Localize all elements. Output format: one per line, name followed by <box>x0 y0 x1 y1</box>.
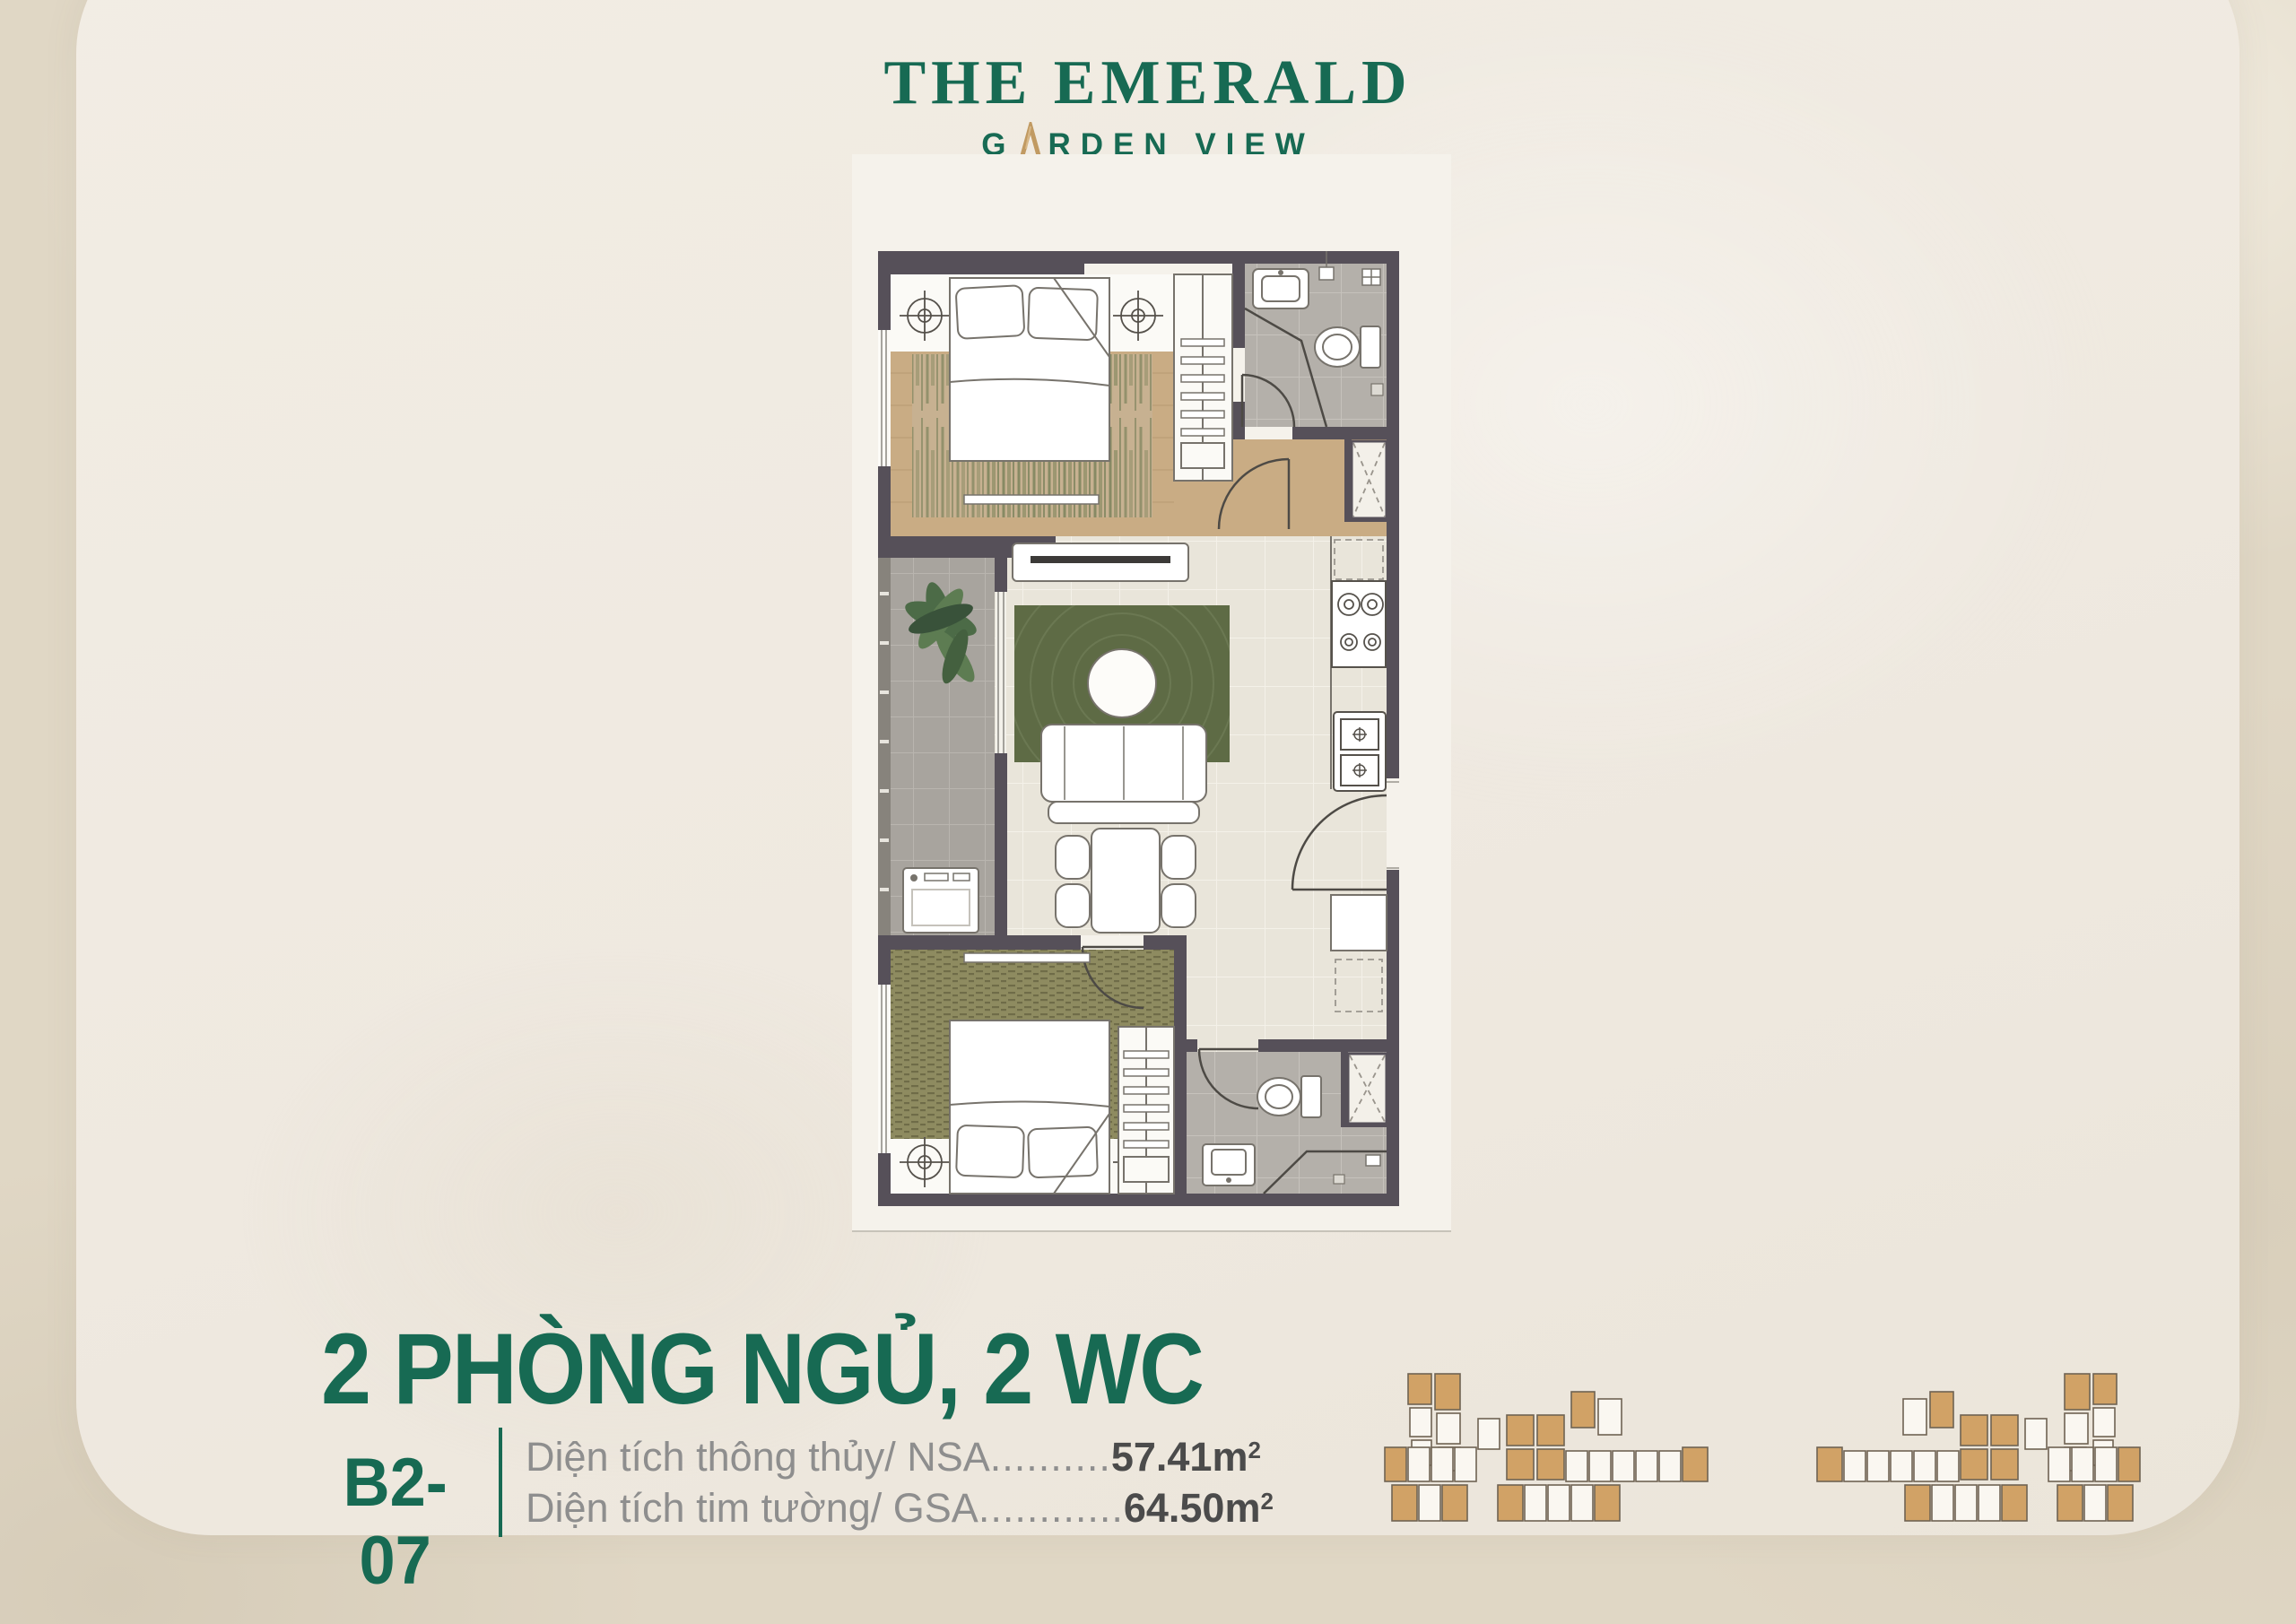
washing-machine <box>903 868 978 933</box>
balcony-rail <box>878 558 891 935</box>
leader-dots: ............ <box>978 1485 1124 1531</box>
balcony-slider <box>996 592 1006 753</box>
area-nsa: Diện tích thông thủy/ NSA..........57.41… <box>526 1425 1274 1476</box>
entry-threshold <box>1387 782 1399 868</box>
area-gsa-sup: 2 <box>1260 1488 1273 1515</box>
vent-grille <box>1362 269 1380 285</box>
wardrobe-2 <box>1118 1027 1174 1194</box>
floor-drain <box>1371 384 1383 395</box>
area-gsa: Diện tích tim tường/ GSA............64.5… <box>526 1476 1274 1527</box>
floor-drain <box>1334 1175 1344 1184</box>
unit-type-title: 2 PHÒNG NGỦ, 2 WC <box>321 1311 1203 1427</box>
unit-code: B2-07 <box>312 1444 478 1600</box>
bed-2 <box>950 1020 1109 1194</box>
divider <box>499 1428 502 1537</box>
poster: THE EMERALD G RDEN VIEW Kết Tinh Hoa - L… <box>0 0 2296 1624</box>
floor-plan <box>878 251 1399 1206</box>
stove <box>1332 581 1386 667</box>
area-gsa-label: Diện tích tim tường/ GSA <box>526 1485 978 1531</box>
wardrobe-1 <box>1174 274 1232 481</box>
logo-title: THE EMERALD <box>0 52 2296 115</box>
area-nsa-sup: 2 <box>1248 1437 1260 1463</box>
bed-1 <box>950 278 1109 461</box>
toilet-tank <box>1361 326 1380 368</box>
kitchen <box>1331 536 1387 1012</box>
area-gsa-value: 64.50m <box>1124 1485 1261 1531</box>
wall-fixture <box>1366 1155 1380 1166</box>
toilet-tank <box>1301 1076 1321 1117</box>
service-shaft-2 <box>1348 1054 1387 1124</box>
bedroom1-console <box>964 495 1099 504</box>
bedroom2-console <box>964 953 1090 962</box>
tv <box>1031 556 1170 563</box>
area-nsa-value: 57.41m <box>1111 1434 1248 1480</box>
area-nsa-label: Diện tích thông thủy/ NSA <box>526 1434 990 1480</box>
unit-areas: Diện tích thông thủy/ NSA..........57.41… <box>526 1425 1274 1527</box>
site-key-plan <box>1381 1372 2144 1533</box>
leader-dots: .......... <box>990 1434 1111 1480</box>
cabinet <box>1331 895 1387 951</box>
building-wing-right <box>1817 1374 2140 1521</box>
coffee-table <box>1088 649 1156 717</box>
sofa <box>1041 725 1206 823</box>
sink-unit <box>1334 712 1386 791</box>
building-wing-left <box>1385 1374 1708 1521</box>
light-fixture <box>1319 267 1334 280</box>
service-shaft-1 <box>1352 441 1387 518</box>
